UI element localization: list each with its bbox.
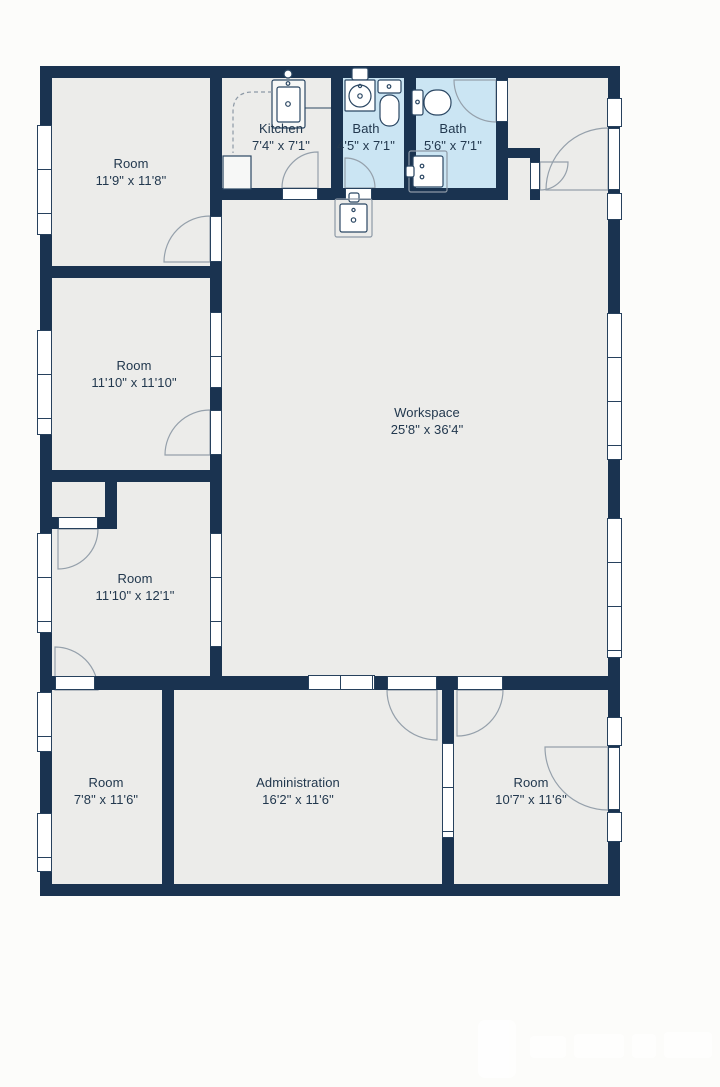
room-dims: 25'8" x 36'4" — [391, 421, 464, 438]
room-name: Room — [96, 155, 167, 172]
room-label: Administration 16'2" x 11'6" — [256, 774, 340, 808]
room-dims: 7'4" x 7'1" — [252, 137, 310, 154]
watermark-logo — [472, 1018, 718, 1084]
room-dims: 5'6" x 7'1" — [424, 137, 482, 154]
room-label: Room 7'8" x 11'6" — [74, 774, 138, 808]
room-label: Room 10'7" x 11'6" — [495, 774, 567, 808]
room-dims: 7'8" x 11'6" — [74, 791, 138, 808]
room-name: Workspace — [391, 404, 464, 421]
watermark-icon — [478, 1020, 516, 1078]
room-label: Room 11'10" x 12'1" — [96, 570, 175, 604]
toilet-icon — [412, 90, 451, 115]
utility-sink-icon — [335, 193, 372, 237]
bath-sink-icon — [406, 151, 447, 192]
room-name: Bath — [337, 120, 395, 137]
watermark-text-blob — [632, 1034, 656, 1058]
room-name: Administration — [256, 774, 340, 791]
watermark-text-blob — [574, 1034, 624, 1058]
room-label: Workspace 25'8" x 36'4" — [391, 404, 464, 438]
room-name: Room — [74, 774, 138, 791]
room-name: Room — [96, 570, 175, 587]
room-label: Room 11'9" x 11'8" — [96, 155, 167, 189]
floor-plan: Room 11'9" x 11'8" Kitchen 7'4" x 7'1" B… — [0, 0, 720, 1087]
room-label: Bath 5'6" x 7'1" — [424, 120, 482, 154]
room-dims: 16'2" x 11'6" — [256, 791, 340, 808]
room-name: Room — [495, 774, 567, 791]
room-name: Room — [91, 357, 176, 374]
watermark-text-blob — [530, 1036, 566, 1058]
room-dims: 11'10" x 12'1" — [96, 587, 175, 604]
room-label: Bath 4'5" x 7'1" — [337, 120, 395, 154]
room-name: Kitchen — [252, 120, 310, 137]
vanity-sink-icon — [345, 68, 375, 111]
room-dims: 11'9" x 11'8" — [96, 172, 167, 189]
room-dims: 11'10" x 11'10" — [91, 374, 176, 391]
room-name: Bath — [424, 120, 482, 137]
room-label: Room 11'10" x 11'10" — [91, 357, 176, 391]
room-dims: 10'7" x 11'6" — [495, 791, 567, 808]
watermark-text-blob — [664, 1032, 712, 1058]
room-dims: 4'5" x 7'1" — [337, 137, 395, 154]
room-label: Kitchen 7'4" x 7'1" — [252, 120, 310, 154]
